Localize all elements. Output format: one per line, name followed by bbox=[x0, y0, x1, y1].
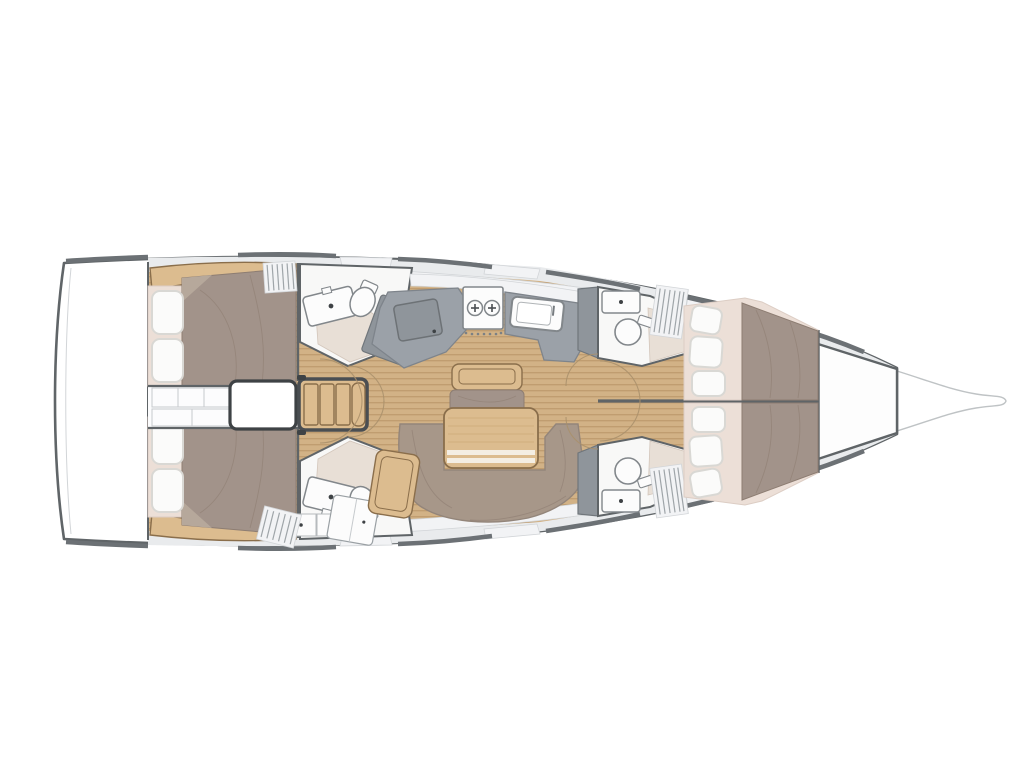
engine-compartment bbox=[230, 381, 296, 429]
washbasin bbox=[602, 291, 640, 313]
pillow bbox=[152, 291, 183, 334]
pillow bbox=[692, 371, 725, 396]
hanging-locker-louver bbox=[650, 285, 689, 339]
pillow bbox=[689, 468, 723, 499]
wet-locker bbox=[578, 287, 598, 358]
pillow bbox=[152, 469, 183, 512]
pillow bbox=[689, 435, 723, 467]
pillow bbox=[152, 339, 183, 382]
pillow bbox=[692, 407, 725, 432]
nav-seat bbox=[367, 449, 420, 519]
yacht-floor-plan bbox=[0, 0, 1026, 770]
folding-table bbox=[444, 408, 538, 468]
hanging-locker-louver bbox=[650, 464, 689, 518]
fridge-hatch bbox=[393, 298, 443, 341]
washbasin bbox=[602, 490, 640, 512]
galley-sink bbox=[510, 296, 565, 331]
floor-plan-canvas bbox=[0, 0, 1026, 770]
pillow bbox=[689, 336, 723, 368]
wet-locker bbox=[578, 445, 598, 516]
pillow bbox=[689, 305, 723, 336]
hanging-locker-louver bbox=[263, 261, 297, 293]
companionway-stairs bbox=[297, 375, 367, 435]
two-burner-stove bbox=[463, 287, 503, 335]
